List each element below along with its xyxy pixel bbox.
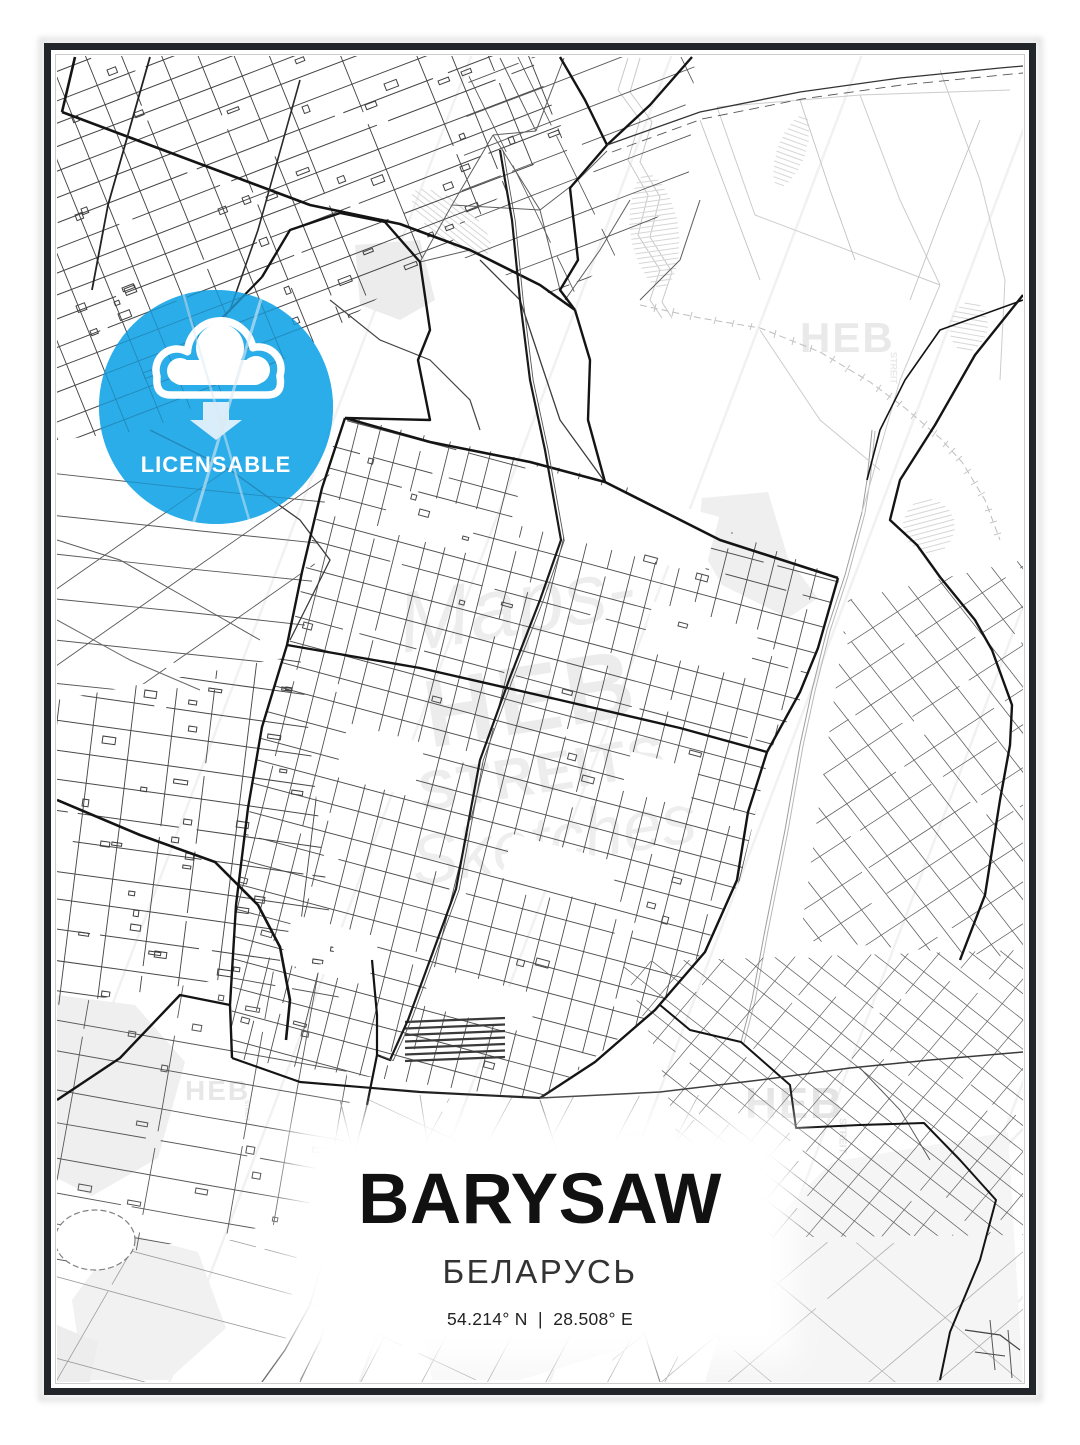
svg-text:STREIT: STREIT xyxy=(888,352,898,385)
svg-text:БЕЛАРУСЬ: БЕЛАРУСЬ xyxy=(442,1253,637,1290)
svg-text:LICENSABLE: LICENSABLE xyxy=(141,452,292,477)
svg-text:HEB: HEB xyxy=(800,314,895,361)
svg-text:BARYSAW: BARYSAW xyxy=(358,1160,722,1239)
svg-text:STREIT: STREIT xyxy=(837,1118,848,1154)
svg-text:54.214° N | 28.508° E: 54.214° N | 28.508° E xyxy=(447,1309,633,1329)
